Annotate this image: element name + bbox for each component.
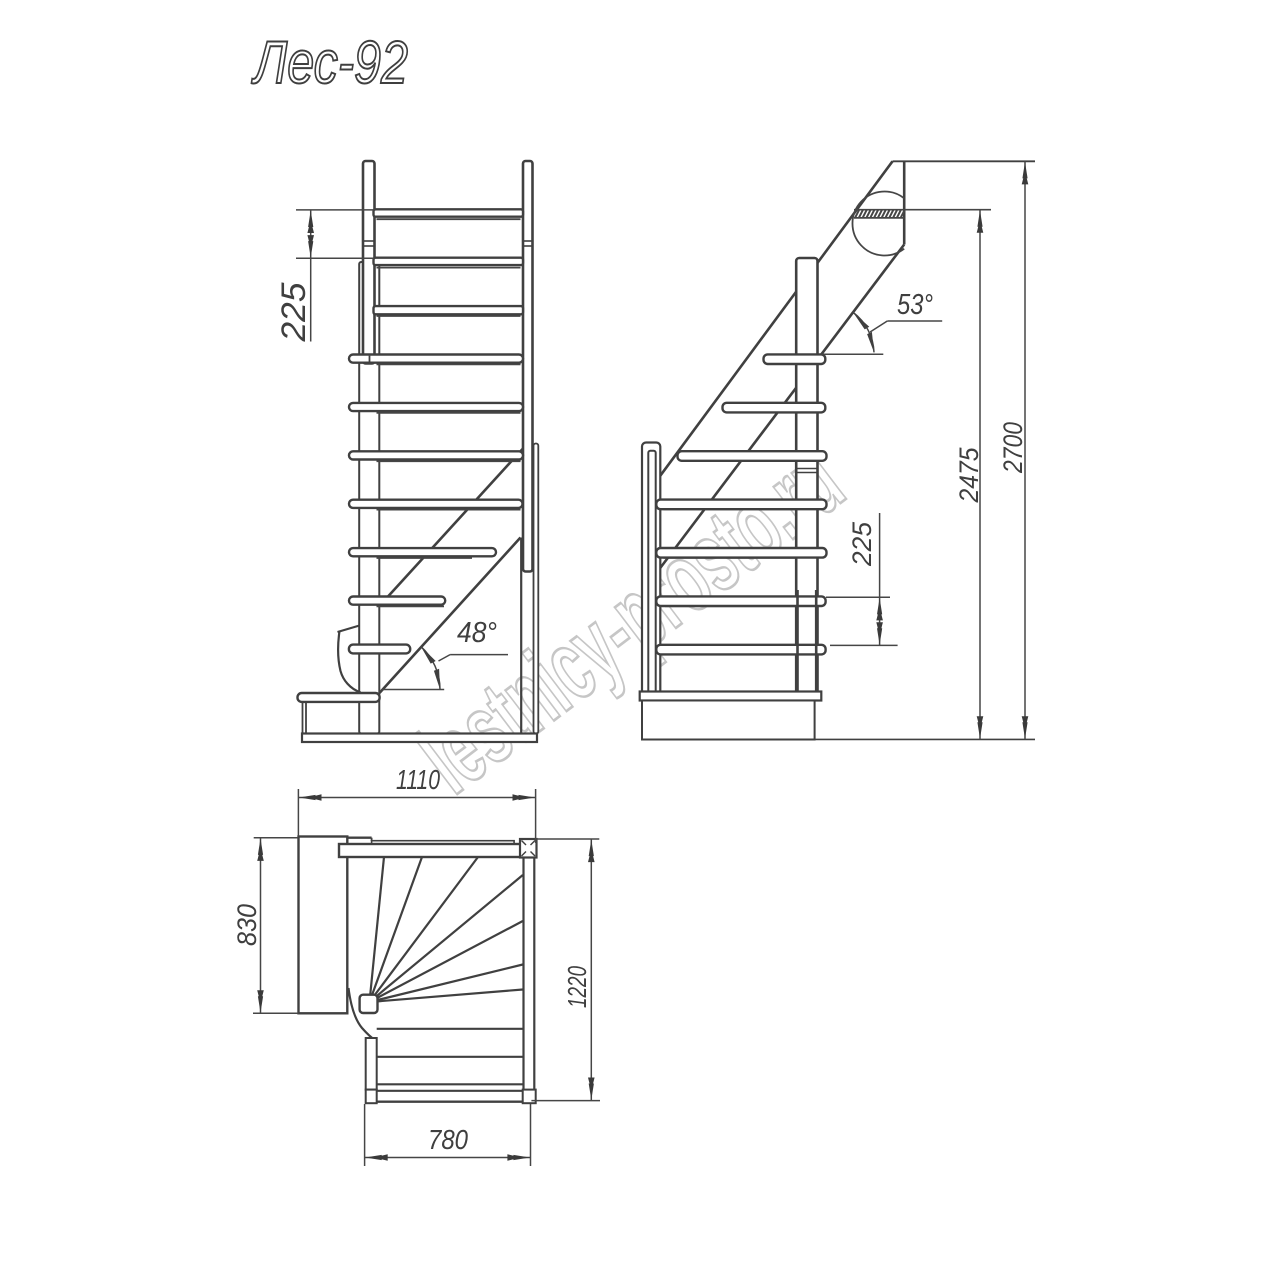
svg-text:1220: 1220	[562, 966, 592, 1008]
svg-text:Лес-92: Лес-92	[251, 29, 408, 96]
svg-text:48°: 48°	[457, 617, 497, 649]
svg-text:2475: 2475	[954, 447, 984, 504]
svg-text:830: 830	[232, 904, 262, 946]
svg-text:225: 225	[847, 521, 877, 567]
svg-text:1110: 1110	[396, 764, 440, 795]
svg-text:53°: 53°	[897, 289, 933, 321]
svg-text:2700: 2700	[998, 422, 1028, 474]
svg-text:780: 780	[428, 1124, 468, 1155]
svg-text:225: 225	[275, 282, 313, 342]
